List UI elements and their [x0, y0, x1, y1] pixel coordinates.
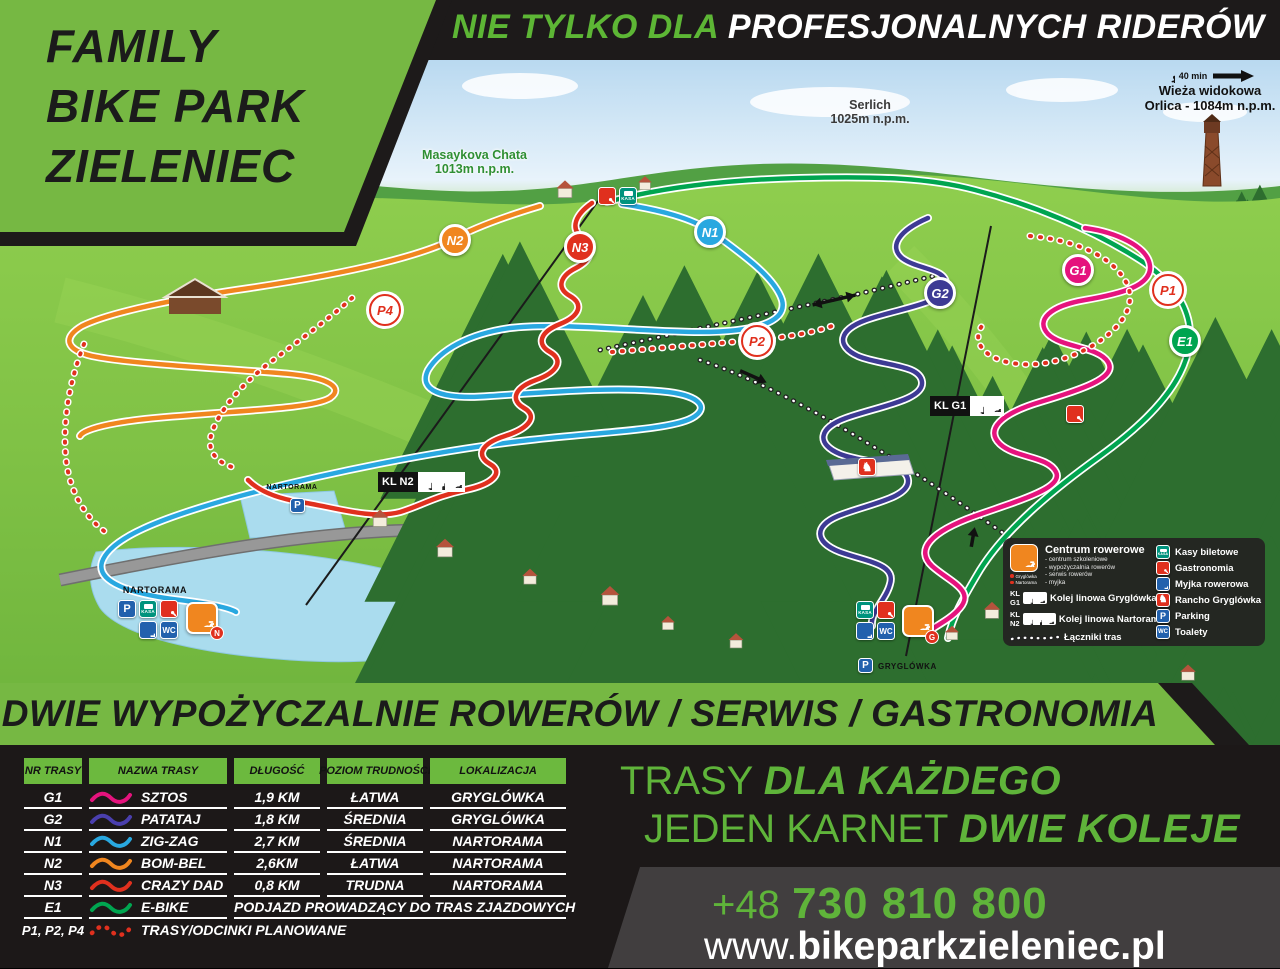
parking-icon: P — [858, 658, 873, 673]
trail-id: N2 — [24, 853, 82, 875]
trail-badge-e1: E1 — [1169, 325, 1201, 357]
label-masaykova: Masaykova Chata 1013m n.p.m. — [392, 148, 557, 176]
legend-rancho: ♞ Rancho Gryglówka — [1156, 593, 1258, 607]
promo-line-2: JEDEN KARNET DWIE KOLEJE — [644, 807, 1240, 852]
bike-wash-icon — [1156, 577, 1170, 591]
trail-badge-n1: N1 — [694, 216, 726, 248]
website-url: www.bikeparkzieleniec.pl — [704, 925, 1166, 969]
trail-table: NR TRASY NAZWA TRASY DŁUGOŚĆ POZIOM TRUD… — [24, 758, 566, 941]
legend-ticket: KASA Kasy biletowe — [1156, 545, 1258, 559]
gastronomy-icon — [877, 601, 895, 619]
gastronomy-icon — [160, 600, 178, 618]
trail-id: E1 — [24, 897, 82, 919]
trail-name: E-BIKE — [89, 897, 227, 919]
col-header: DŁUGOŚĆ — [234, 758, 320, 784]
toilet-icon: WC — [1156, 625, 1170, 639]
legend-lift-n2: KL N2 Kolej linowa Nartorama — [1010, 610, 1156, 628]
promo-line-1: TRASY DLA KAŻDEGO — [620, 759, 1061, 804]
trail-line-icon — [89, 900, 133, 914]
chairlift-icon — [421, 475, 432, 490]
parking-icon: P — [290, 498, 305, 513]
promo-panel: TRASY DLA KAŻDEGO JEDEN KARNET DWIE KOLE… — [600, 745, 1280, 968]
gastronomy-icon — [1066, 405, 1084, 423]
services-banner: DWIE WYPOŻYCZALNIE ROWERÓW / SERWIS / GA… — [0, 683, 1280, 745]
chairlift-icon — [973, 399, 984, 414]
trail-line-icon — [89, 812, 133, 826]
trail-id: G2 — [24, 809, 82, 831]
gryglowka-marker: G — [925, 630, 939, 644]
bottom-panel: NR TRASY NAZWA TRASY DŁUGOŚĆ POZIOM TRUD… — [0, 745, 1280, 968]
trail-id: N1 — [24, 831, 82, 853]
phone-number: +48 730 810 800 — [712, 879, 1048, 929]
legend-gastronomy: Gastronomia — [1156, 561, 1258, 575]
label-orlica: 40 min Wieża widokowa Orlica - 1084m n.p… — [1130, 68, 1280, 113]
col-header: NR TRASY — [24, 758, 82, 784]
col-header: NAZWA TRASY — [89, 758, 227, 784]
gastronomy-icon — [598, 187, 616, 205]
trail-badge-g1: G1 — [1062, 254, 1094, 286]
lift-label-kl-g1: KL G1 — [930, 396, 1004, 416]
walker-icon — [1165, 68, 1175, 83]
trail-name: ZIG-ZAG — [89, 831, 227, 853]
trail-note: PODJAZD PROWADZĄCY DO TRAS ZJAZDOWYCH — [234, 897, 566, 919]
ticket-office-icon: KASA — [619, 187, 637, 205]
trail-badge-p1: P1 — [1152, 274, 1184, 306]
ticket-office-icon: KASA — [1156, 545, 1170, 559]
legend-toilet: WC Toalety — [1156, 625, 1258, 639]
bike-icon — [447, 476, 462, 488]
trail-name: PATATAJ — [89, 809, 227, 831]
parking-icon: P — [118, 600, 136, 618]
legend-bike-wash: Myjka rowerowa — [1156, 577, 1258, 591]
bike-wash-icon — [856, 622, 874, 640]
trail-name: TRASY/ODCINKI PLANOWANE — [89, 919, 566, 941]
legend-lift-g1: KL G1 Kolej linowa Gryglówka — [1010, 589, 1156, 607]
trail-name: BOM-BEL — [89, 853, 227, 875]
trail-name: CRAZY DAD — [89, 875, 227, 897]
ticket-office-icon: KASA — [856, 601, 874, 619]
gastronomy-icon — [1156, 561, 1170, 575]
trail-line-icon — [89, 790, 133, 804]
gondola-icon — [434, 475, 445, 490]
legend-parking: P Parking — [1156, 609, 1258, 623]
bike-wash-icon — [139, 621, 157, 639]
label-gryglowka: GRYGLÓWKA — [878, 662, 968, 671]
parking-icon: P — [1156, 609, 1170, 623]
trail-id: P1, P2, P4 — [24, 919, 82, 941]
ticket-office-icon: KASA — [139, 600, 157, 618]
trail-badge-p2: P2 — [741, 325, 773, 357]
trail-dotted-line-icon — [89, 923, 133, 937]
label-nartorama: NARTORAMA — [100, 585, 210, 595]
nartorama-marker: N — [210, 626, 224, 640]
map-legend: Gryglówka Nartorama Centrum rowerowe - c… — [1003, 538, 1265, 646]
trail-line-icon — [89, 878, 133, 892]
legend-connectors: Łączniki tras — [1010, 632, 1156, 643]
trail-name: SZTOS — [89, 787, 227, 809]
trail-id: N3 — [24, 875, 82, 897]
trail-badge-p4: P4 — [369, 294, 401, 326]
bike-icon — [986, 400, 1001, 412]
dotted-line-icon — [1010, 634, 1060, 642]
trail-line-icon — [89, 856, 133, 870]
toilet-icon: WC — [160, 621, 178, 639]
rancho-icon: ♞ — [858, 458, 876, 476]
label-nartorama-upper: NARTORAMA — [252, 484, 332, 491]
headline: NIE TYLKO DLA PROFESJONALNYCH RIDERÓW — [452, 8, 1265, 47]
label-serlich: Serlich 1025m n.p.m. — [810, 98, 930, 126]
trail-badge-g2: G2 — [924, 277, 956, 309]
trail-badge-n2: N2 — [439, 224, 471, 256]
arrow-right-icon — [1211, 70, 1255, 82]
lift-label-kl-n2: KL N2 — [378, 472, 465, 492]
col-header: LOKALIZACJA — [430, 758, 566, 784]
trail-line-icon — [89, 834, 133, 848]
rancho-icon: ♞ — [1156, 593, 1170, 607]
toilet-icon: WC — [877, 622, 895, 640]
trail-badge-n3: N3 — [564, 231, 596, 263]
col-header: POZIOM TRUDNOŚCI — [327, 758, 423, 784]
bike-center-legend-icon — [1010, 544, 1038, 572]
legend-title: Centrum rowerowe — [1045, 544, 1145, 556]
trail-id: G1 — [24, 787, 82, 809]
